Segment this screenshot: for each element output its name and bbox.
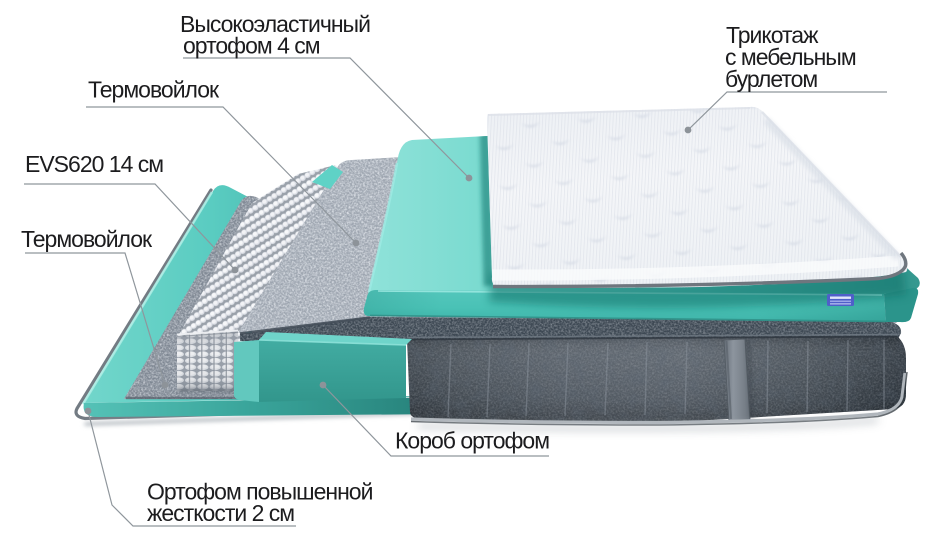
svg-text:Короб ортофом: Короб ортофом <box>395 428 549 454</box>
svg-text:Термовойлок: Термовойлок <box>21 226 153 252</box>
svg-text:жесткости 2 см: жесткости 2 см <box>147 500 294 526</box>
svg-text:ортофом 4 см: ортофом 4 см <box>183 33 320 59</box>
svg-text:Термовойлок: Термовойлок <box>88 77 220 103</box>
svg-text:EVS620 14 см: EVS620 14 см <box>25 151 163 177</box>
svg-text:бурлетом: бурлетом <box>725 66 817 92</box>
